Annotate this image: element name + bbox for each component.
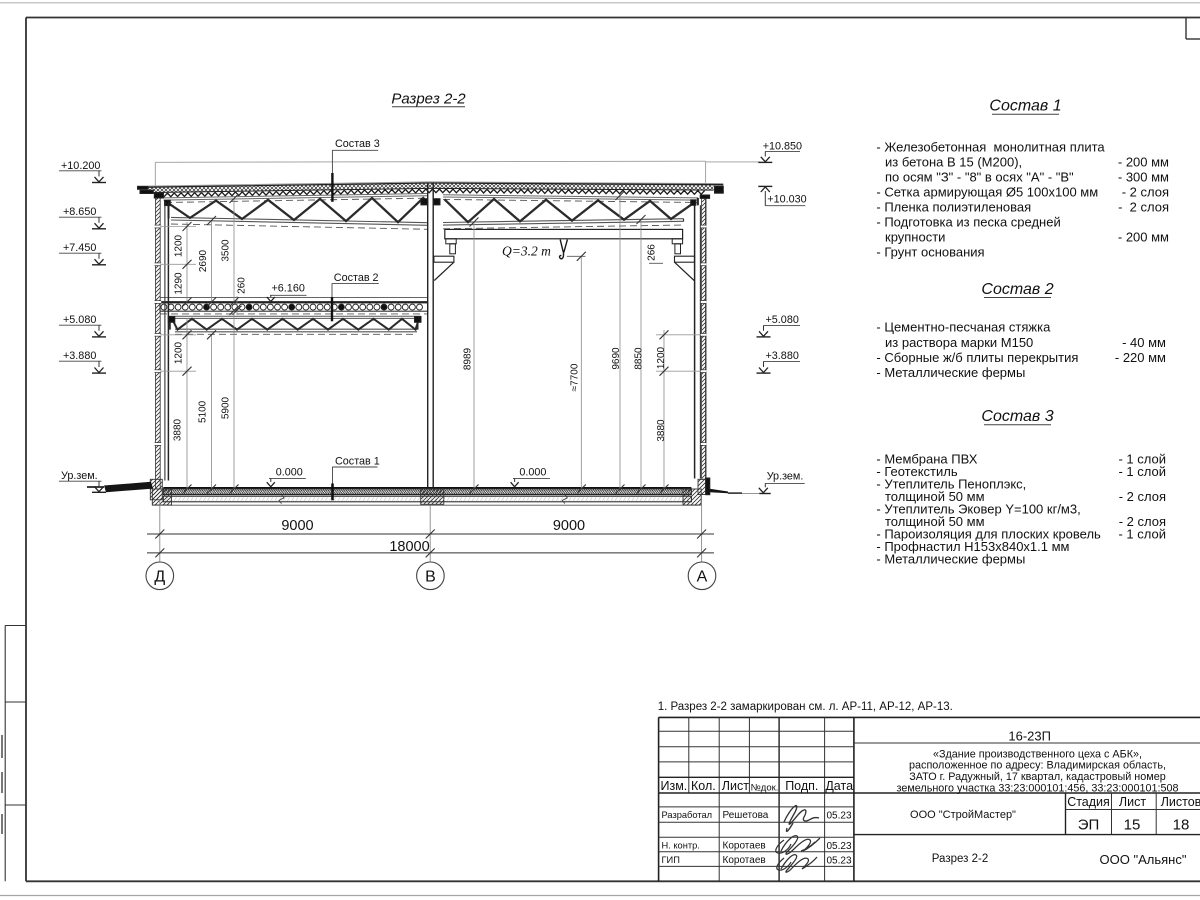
svg-text:- Грунт основания: - Грунт основания xyxy=(876,244,984,259)
svg-text:18000: 18000 xyxy=(389,539,429,555)
svg-text:+8.650: +8.650 xyxy=(63,206,96,218)
svg-text:крупности: крупности xyxy=(885,229,945,244)
svg-text:- Пленка полиэтиленовая: - Пленка полиэтиленовая xyxy=(876,199,1031,214)
svg-text:05.23: 05.23 xyxy=(826,855,851,866)
svg-text:3500: 3500 xyxy=(221,239,232,262)
svg-text:Дата: Дата xyxy=(825,779,853,793)
svg-text:Н. контр.: Н. контр. xyxy=(662,840,700,850)
svg-text:- Металлические фермы: - Металлические фермы xyxy=(876,552,1025,567)
svg-text:Состав 2: Состав 2 xyxy=(334,272,379,284)
svg-text:- 200 мм: - 200 мм xyxy=(1118,229,1169,244)
svg-text:≈7700: ≈7700 xyxy=(570,363,581,391)
svg-text:ООО "Альянс": ООО "Альянс" xyxy=(1100,852,1187,867)
svg-text:3880: 3880 xyxy=(173,418,184,441)
svg-text:+10.850: +10.850 xyxy=(763,140,802,152)
svg-text:9690: 9690 xyxy=(611,347,622,370)
svg-text:+10.200: +10.200 xyxy=(61,160,100,172)
svg-text:18: 18 xyxy=(1173,817,1190,834)
svg-text:1200: 1200 xyxy=(656,346,667,369)
svg-text:Лист: Лист xyxy=(722,779,749,793)
svg-text:А: А xyxy=(697,568,708,585)
svg-text:Состав 1: Состав 1 xyxy=(989,98,1061,115)
svg-text:+3.880: +3.880 xyxy=(63,350,96,362)
svg-text:- 220 мм: - 220 мм xyxy=(1115,350,1166,365)
svg-text:- 200 мм: - 200 мм xyxy=(1118,154,1169,169)
svg-text:Состав 3: Состав 3 xyxy=(335,138,380,150)
svg-text:- Сетка армирующая Ø5 100х100: - Сетка армирующая Ø5 100х100 мм xyxy=(876,184,1098,199)
svg-text:05.23: 05.23 xyxy=(826,811,851,822)
svg-text:Разрез 2-2: Разрез 2-2 xyxy=(391,91,466,108)
svg-text:- 2 слоя: - 2 слоя xyxy=(1118,199,1169,214)
svg-text:Состав 2: Состав 2 xyxy=(981,281,1053,298)
svg-text:Ур.зем.: Ур.зем. xyxy=(61,470,98,482)
svg-text:Коротаев: Коротаев xyxy=(723,855,766,866)
svg-text:3880: 3880 xyxy=(656,419,667,442)
svg-text:Кол.: Кол. xyxy=(691,779,716,793)
svg-text:ГИП: ГИП xyxy=(662,855,680,865)
svg-text:- Металлические фермы: - Металлические фермы xyxy=(876,365,1025,380)
svg-text:Ур.зем.: Ур.зем. xyxy=(767,470,804,482)
svg-text:+7.450: +7.450 xyxy=(63,242,96,254)
svg-text:15: 15 xyxy=(1124,817,1141,834)
svg-text:Изм.: Изм. xyxy=(661,779,688,793)
svg-text:из бетона В 15 (М200),: из бетона В 15 (М200), xyxy=(885,154,1022,169)
svg-text:- Железобетонная монолитная п: - Железобетонная монолитная плита xyxy=(876,139,1105,154)
svg-text:+5.080: +5.080 xyxy=(63,314,96,326)
svg-text:9000: 9000 xyxy=(281,518,313,534)
svg-text:+5.080: +5.080 xyxy=(766,314,799,326)
svg-text:Состав 1: Состав 1 xyxy=(335,455,380,467)
svg-text:9000: 9000 xyxy=(553,518,585,534)
svg-text:ЭП: ЭП xyxy=(1078,817,1100,834)
svg-text:Коротаев: Коротаев xyxy=(723,840,766,851)
svg-text:+10.030: +10.030 xyxy=(767,194,806,206)
svg-text:- 40 мм: - 40 мм xyxy=(1122,335,1166,350)
svg-text:расположенное по адресу: Влади: расположенное по адресу: Владимирская об… xyxy=(909,760,1166,772)
svg-text:1200: 1200 xyxy=(174,341,185,364)
svg-text:ЗАТО г. Радужный, 17 квартал,: ЗАТО г. Радужный, 17 квартал, кадастровы… xyxy=(909,771,1165,783)
svg-text:по осям "З" - "8" в осях "А" -: по осям "З" - "8" в осях "А" - "В" xyxy=(885,169,1074,184)
svg-text:- 2 слоя: - 2 слоя xyxy=(1122,184,1169,199)
svg-text:Решетова: Решетова xyxy=(723,810,769,821)
svg-text:2690: 2690 xyxy=(198,249,209,272)
svg-text:0.000: 0.000 xyxy=(276,467,303,479)
svg-text:из раствора марки М150: из раствора марки М150 xyxy=(885,335,1033,350)
svg-text:- 1 слой: - 1 слой xyxy=(1118,464,1166,479)
svg-text:- 1 слой: - 1 слой xyxy=(1118,527,1166,542)
svg-text:0.000: 0.000 xyxy=(519,467,546,479)
svg-text:+3.880: +3.880 xyxy=(766,350,799,362)
svg-text:Разрез 2-2: Разрез 2-2 xyxy=(932,853,988,865)
svg-text:5900: 5900 xyxy=(221,396,232,419)
svg-text:- Подготовка из песка средней: - Подготовка из песка средней xyxy=(876,214,1060,229)
svg-text:Д: Д xyxy=(154,568,165,585)
svg-text:- Сборные ж/б плиты перекрытия: - Сборные ж/б плиты перекрытия xyxy=(876,350,1078,365)
svg-text:266: 266 xyxy=(647,244,658,261)
svg-text:Подп.: Подп. xyxy=(785,779,818,793)
svg-text:«Здание производственного цеха: «Здание производственного цеха с АБК», xyxy=(933,748,1142,760)
svg-text:Состав 3: Состав 3 xyxy=(981,408,1053,425)
svg-text:1. Разрез 2-2 замаркирован см.: 1. Разрез 2-2 замаркирован см. л. АР-11,… xyxy=(658,701,953,713)
svg-text:5100: 5100 xyxy=(198,400,209,423)
svg-text:земельного участка 33:23:00010: земельного участка 33:23:000101:456, 33:… xyxy=(897,782,1179,794)
svg-text:- 2 слоя: - 2 слоя xyxy=(1119,489,1166,504)
svg-text:8850: 8850 xyxy=(634,347,645,370)
svg-text:- 300 мм: - 300 мм xyxy=(1118,169,1169,184)
svg-text:Листов: Листов xyxy=(1161,795,1200,809)
svg-text:8989: 8989 xyxy=(463,347,474,370)
svg-text:Разработал: Разработал xyxy=(662,810,713,820)
svg-text:16-23П: 16-23П xyxy=(1008,729,1051,744)
svg-text:05.23: 05.23 xyxy=(826,841,851,852)
svg-text:1290: 1290 xyxy=(174,272,185,295)
svg-text:Q=3.2 m: Q=3.2 m xyxy=(502,244,551,259)
svg-text:В: В xyxy=(425,568,436,585)
svg-text:+6.160: +6.160 xyxy=(272,283,305,295)
svg-text:Лист: Лист xyxy=(1119,795,1146,809)
svg-text:- Цементно-песчаная стяжка: - Цементно-песчаная стяжка xyxy=(876,320,1051,335)
svg-text:260: 260 xyxy=(237,277,248,294)
svg-text:1200: 1200 xyxy=(174,234,185,257)
svg-text:Стадия: Стадия xyxy=(1067,795,1110,809)
svg-text:№док.: №док. xyxy=(751,783,779,794)
svg-text:ООО "СтройМастер": ООО "СтройМастер" xyxy=(910,809,1016,821)
